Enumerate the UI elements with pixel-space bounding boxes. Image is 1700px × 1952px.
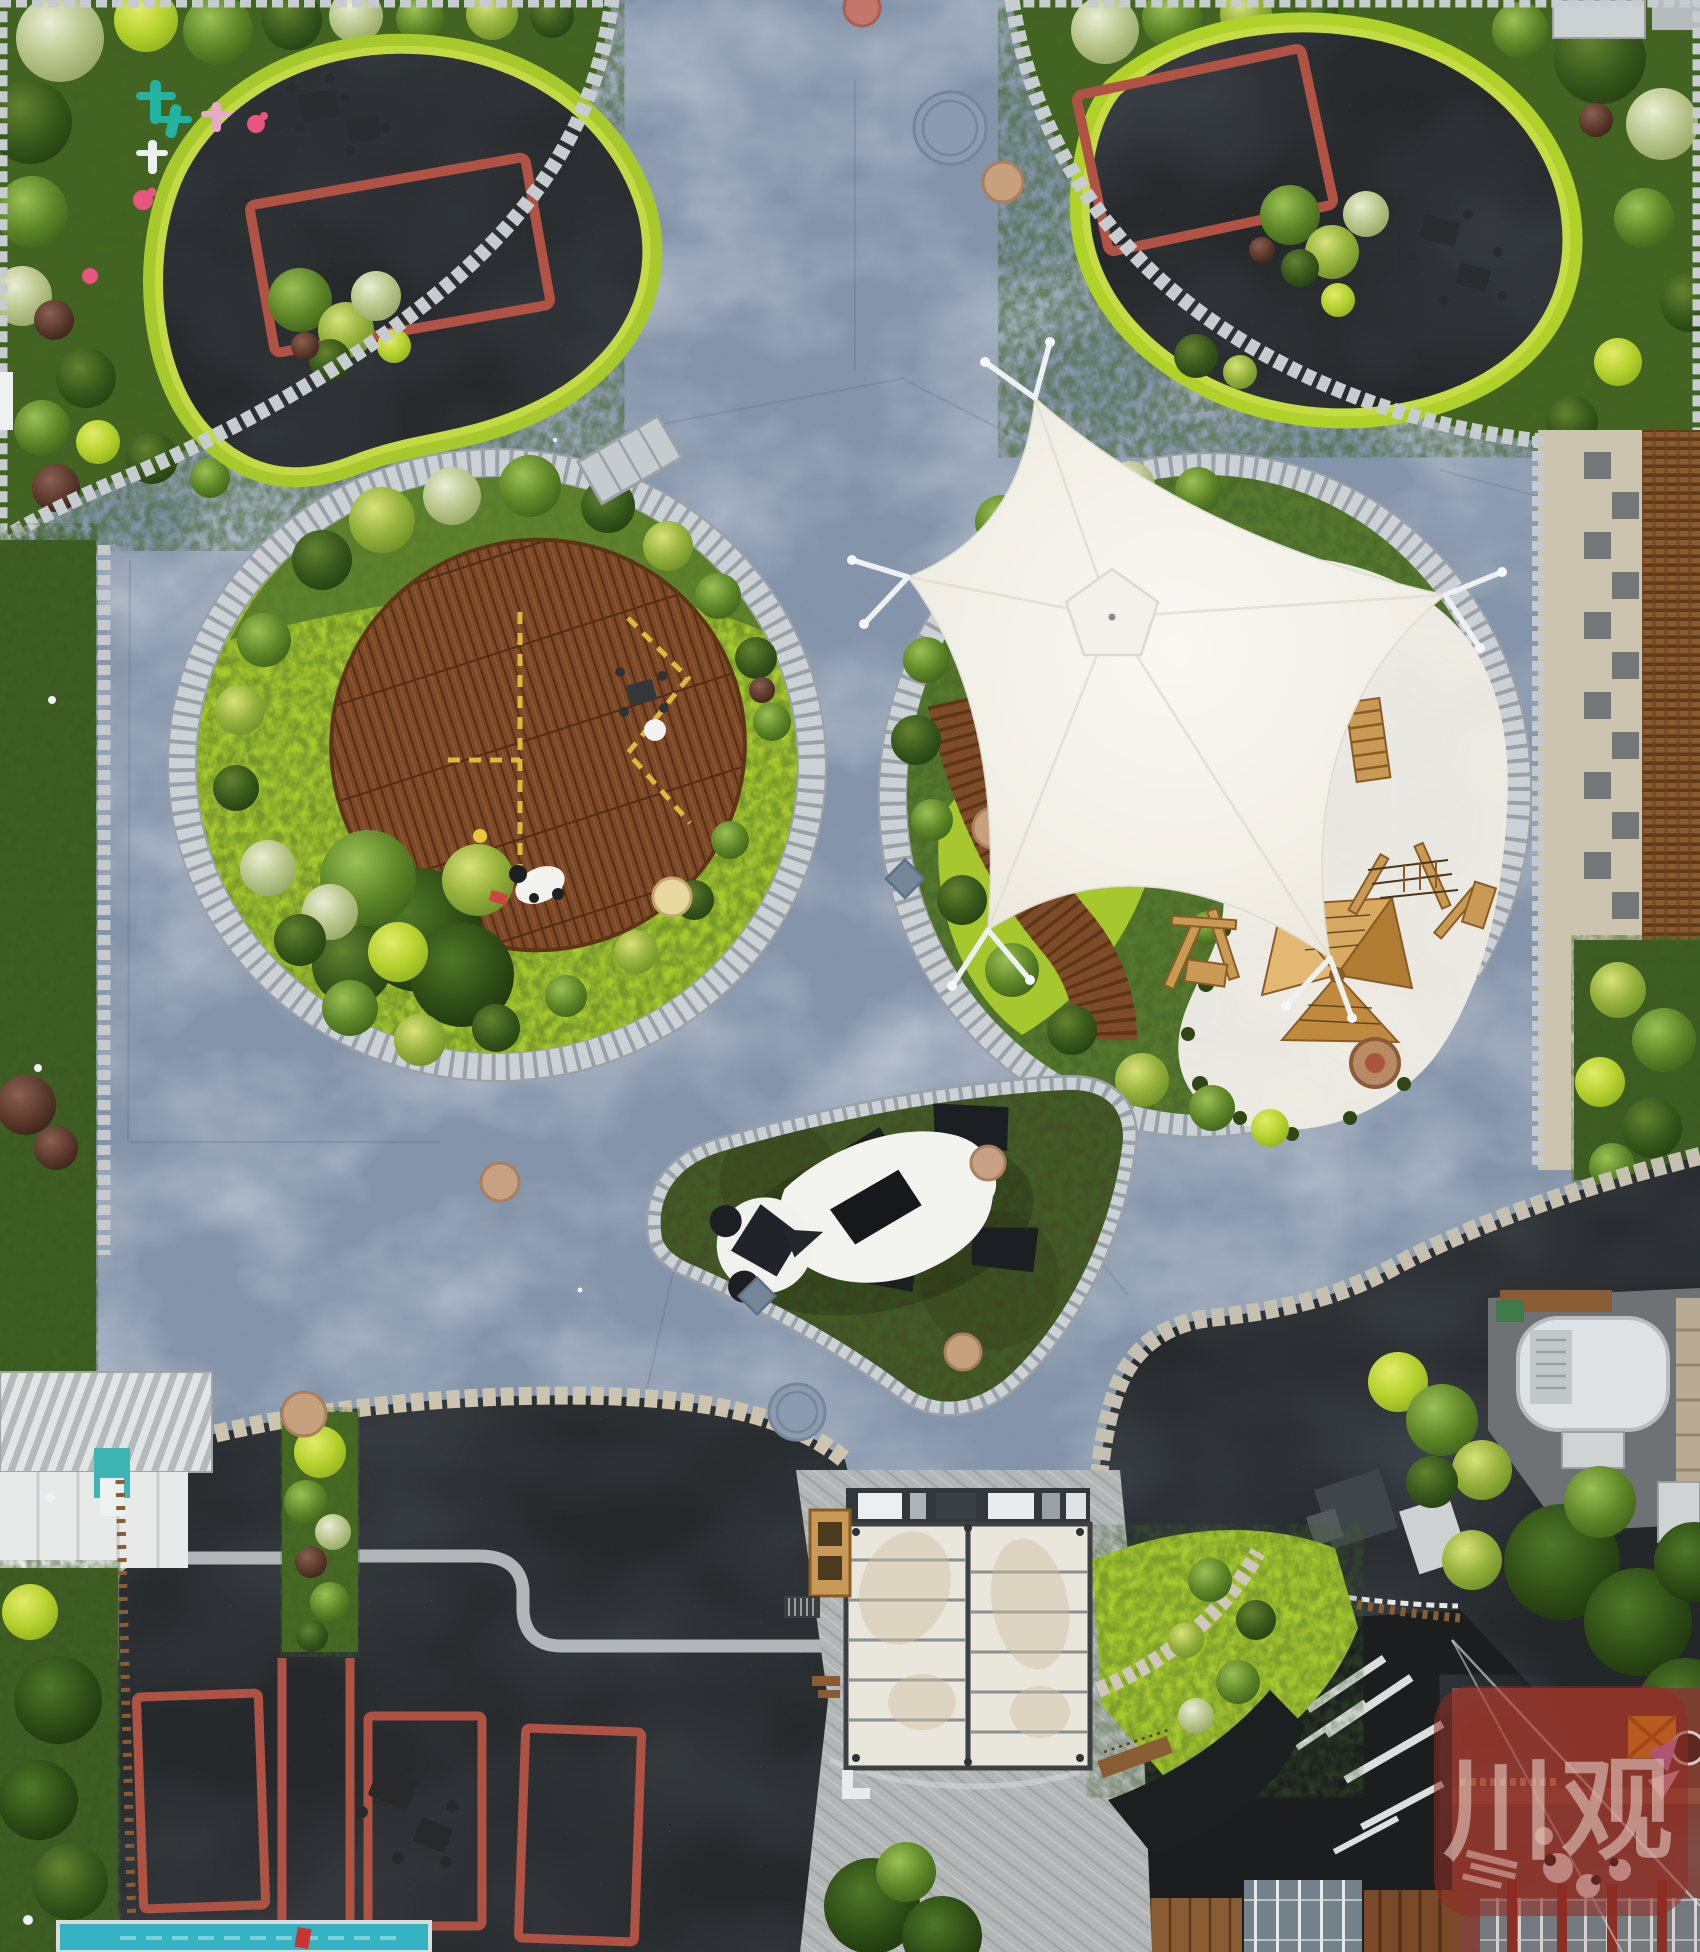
swimming-pool [58, 1922, 430, 1952]
planting-strip [282, 1412, 358, 1652]
round-table [1672, 1732, 1700, 1764]
light-pole [0, 372, 13, 430]
stepping-disc [983, 162, 1023, 202]
service-canopy-roof [844, 1488, 1090, 1768]
glass-roof-building [1244, 1880, 1362, 1952]
sphere-lamp [644, 719, 666, 741]
scene-canvas [0, 0, 1700, 1952]
stepping-disc [945, 1334, 981, 1370]
stepping-disc [481, 1163, 519, 1201]
bottom-left-court [0, 1372, 870, 1952]
stepping-disc [282, 1392, 326, 1436]
manhole-cover [914, 92, 986, 164]
brown-roof-building [1364, 1890, 1460, 1952]
aerial-photo-panda-plaza: 川观 const data = JSON.parse(document.getE… [0, 0, 1700, 1952]
stepping-disc [844, 0, 880, 26]
green-equipment [1496, 1300, 1524, 1322]
yellow-dot-lamp [473, 829, 487, 843]
white-building [0, 1372, 212, 1568]
stepping-disc [971, 1146, 1005, 1180]
wood-trellis [1642, 430, 1700, 950]
drain-grate [784, 1596, 820, 1618]
stepping-disc [653, 878, 691, 916]
bamboo-planting [1574, 940, 1700, 1189]
maroon-bush [34, 1126, 78, 1170]
